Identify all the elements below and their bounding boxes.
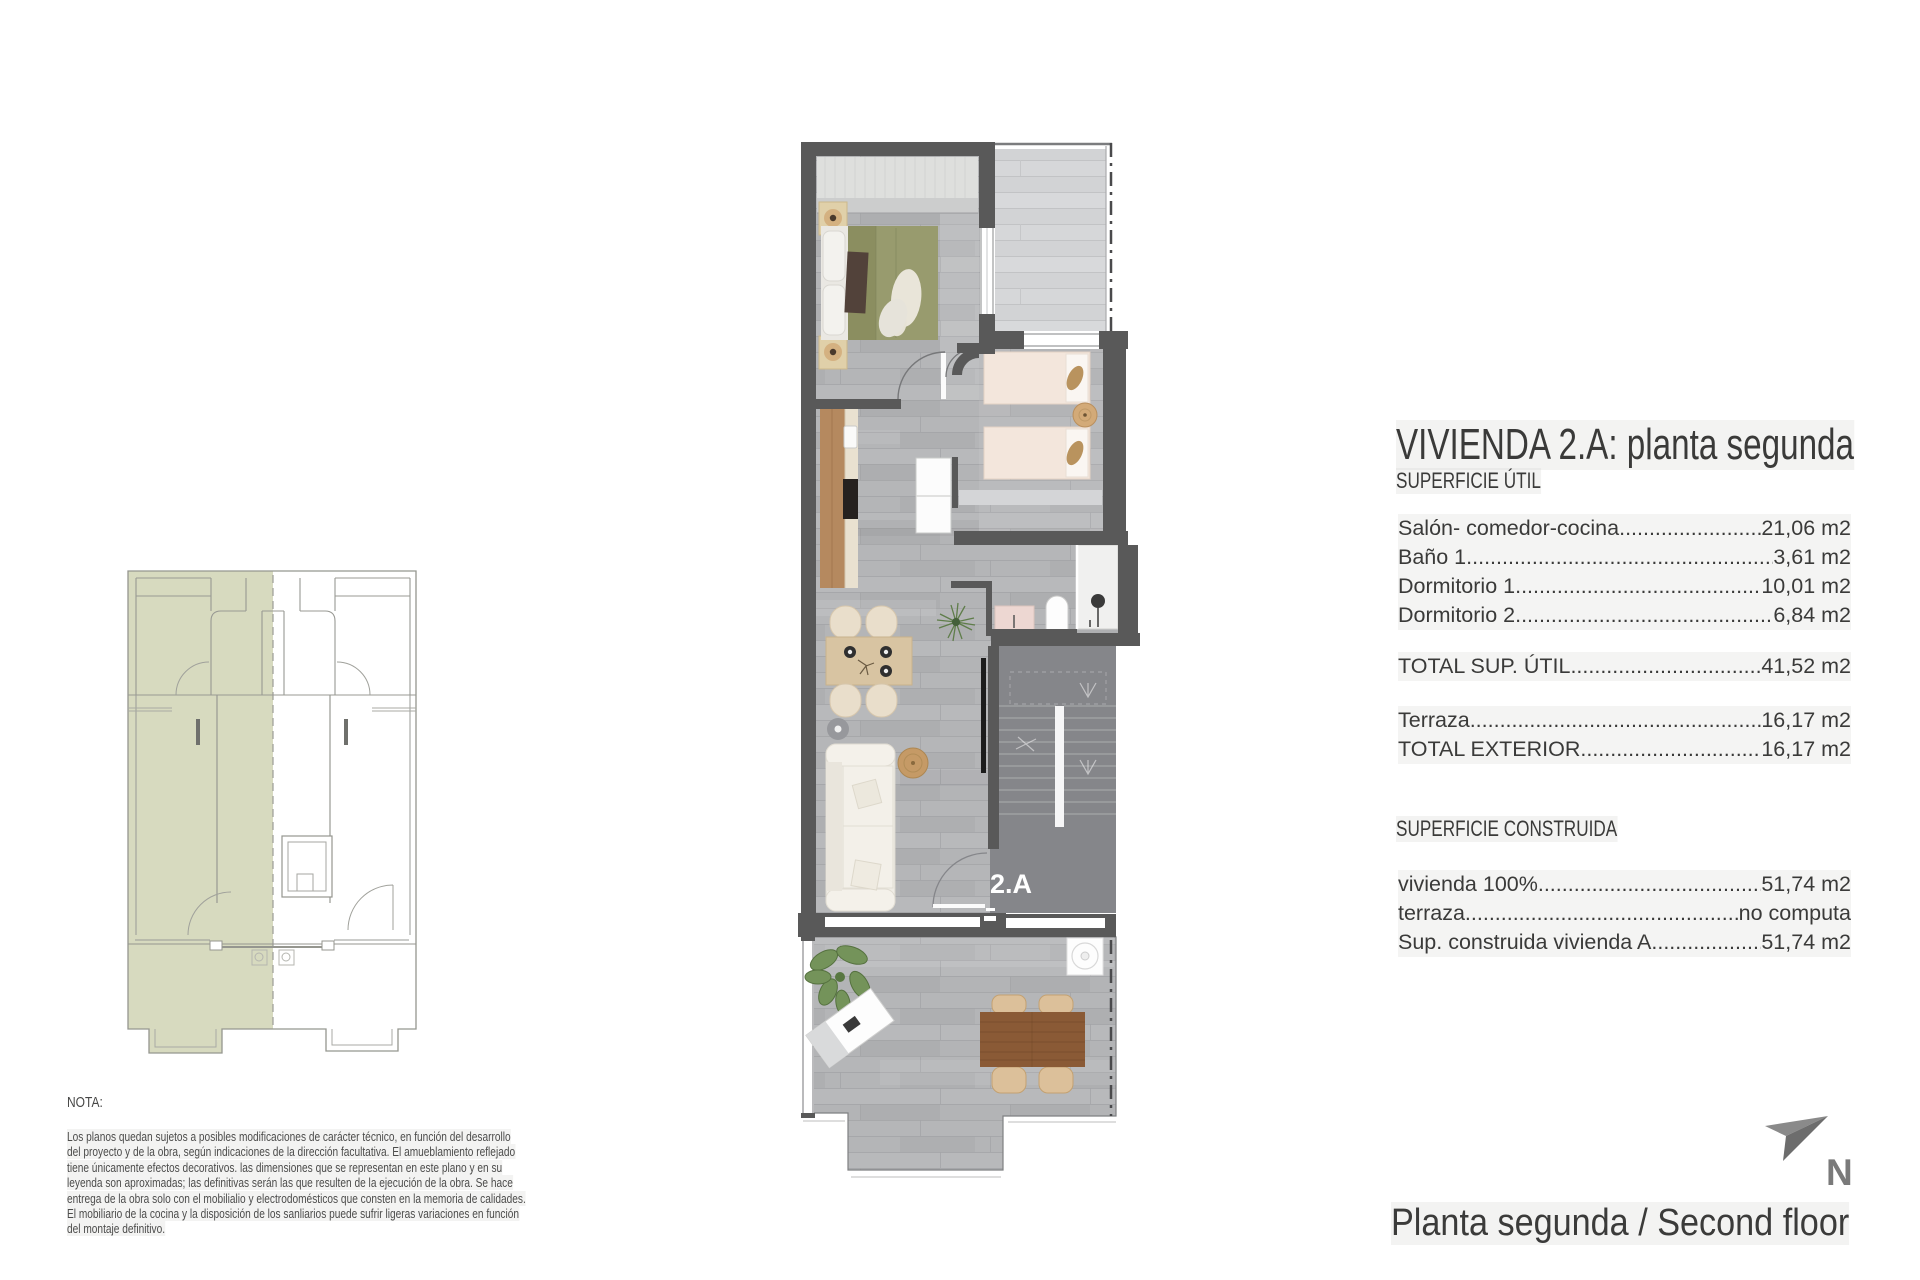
svg-text:N: N bbox=[1826, 1152, 1853, 1193]
svg-text:2.A: 2.A bbox=[990, 869, 1032, 899]
